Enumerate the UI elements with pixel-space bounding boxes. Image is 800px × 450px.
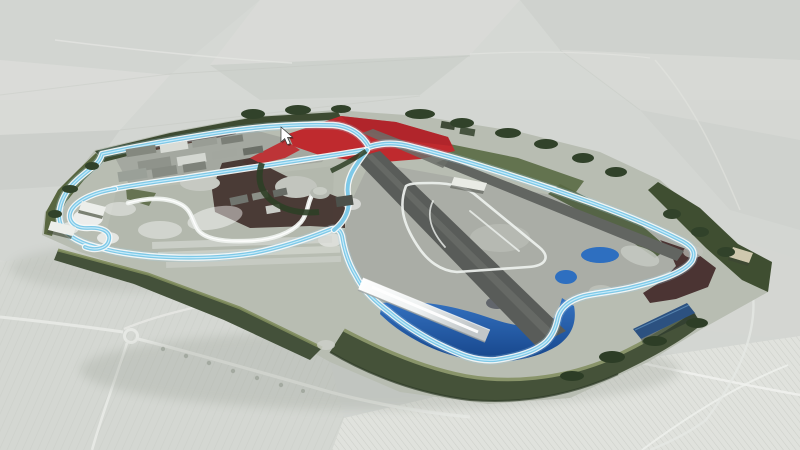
atmospheric-haze [0, 0, 800, 100]
dome-building-roof [313, 187, 327, 195]
tree-cluster [691, 227, 709, 237]
tree-cluster [241, 109, 265, 119]
tree-cluster [534, 139, 558, 149]
tree-cluster [643, 336, 667, 346]
tree-cluster [717, 247, 735, 257]
pale-pad [317, 340, 335, 350]
runoff-area [138, 221, 182, 239]
tree-cluster [85, 162, 99, 170]
tree-cluster [495, 128, 521, 138]
pond [581, 247, 619, 263]
tree-cluster [285, 105, 311, 115]
tree-cluster [560, 371, 584, 381]
tree-cluster [686, 318, 708, 328]
tree-cluster [62, 185, 78, 193]
tree-cluster [605, 167, 627, 177]
tree-cluster [450, 118, 474, 128]
tree-cluster [405, 109, 435, 119]
screenshot-stage [0, 0, 800, 450]
tree-cluster [572, 153, 594, 163]
pond [555, 270, 577, 284]
tree-cluster [48, 210, 62, 218]
tree-cluster [331, 105, 351, 113]
tree-cluster [663, 209, 681, 219]
aerial-render [0, 0, 800, 450]
tree-cluster [599, 351, 625, 363]
